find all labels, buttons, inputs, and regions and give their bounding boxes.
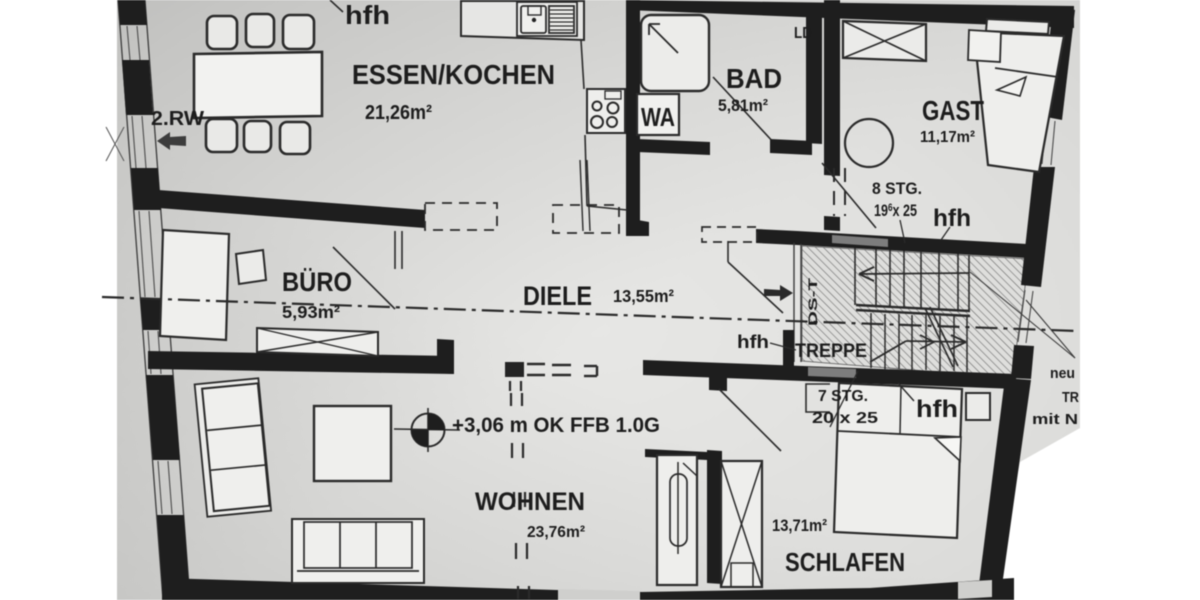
svg-text:5,81m²: 5,81m² xyxy=(718,96,768,115)
svg-text:11,17m²: 11,17m² xyxy=(920,129,975,146)
svg-text:7 STG.: 7 STG. xyxy=(818,388,868,405)
svg-text:WOHNEN: WOHNEN xyxy=(475,488,585,516)
svg-text:DS-T: DS-T xyxy=(808,278,820,326)
svg-text:WA: WA xyxy=(641,102,675,132)
svg-text:BAD: BAD xyxy=(726,63,782,94)
svg-text:DIELE: DIELE xyxy=(523,281,592,311)
svg-text:neu: neu xyxy=(1050,365,1075,382)
svg-text:+3,06 m OK FFB 1.0G: +3,06 m OK FFB 1.0G xyxy=(452,414,660,437)
svg-text:8 STG.: 8 STG. xyxy=(872,179,922,198)
svg-text:23,76m²: 23,76m² xyxy=(527,524,585,541)
svg-text:mit N: mit N xyxy=(1032,411,1078,428)
svg-text:hfh: hfh xyxy=(345,0,390,30)
svg-text:BÜRO: BÜRO xyxy=(282,267,352,297)
svg-text:SCHLAFEN: SCHLAFEN xyxy=(785,547,905,577)
svg-text:GAST: GAST xyxy=(922,95,984,126)
svg-text:21,26m²: 21,26m² xyxy=(365,102,432,124)
svg-text:hfh: hfh xyxy=(933,205,971,232)
svg-text:hfh: hfh xyxy=(916,396,958,423)
svg-text:20 x 25: 20 x 25 xyxy=(812,410,878,427)
svg-text:13,71m²: 13,71m² xyxy=(772,517,827,535)
svg-text:5,93m²: 5,93m² xyxy=(282,302,340,322)
svg-text:13,55m²: 13,55m² xyxy=(613,286,674,306)
svg-text:hfh: hfh xyxy=(737,332,769,352)
svg-text:2.RW: 2.RW xyxy=(151,108,204,130)
svg-text:TR: TR xyxy=(1062,389,1079,406)
svg-text:196x 25: 196x 25 xyxy=(874,201,917,220)
svg-text:TREPPE: TREPPE xyxy=(795,341,867,362)
svg-text:LD: LD xyxy=(794,25,812,42)
svg-text:ESSEN/KOCHEN: ESSEN/KOCHEN xyxy=(352,59,555,90)
